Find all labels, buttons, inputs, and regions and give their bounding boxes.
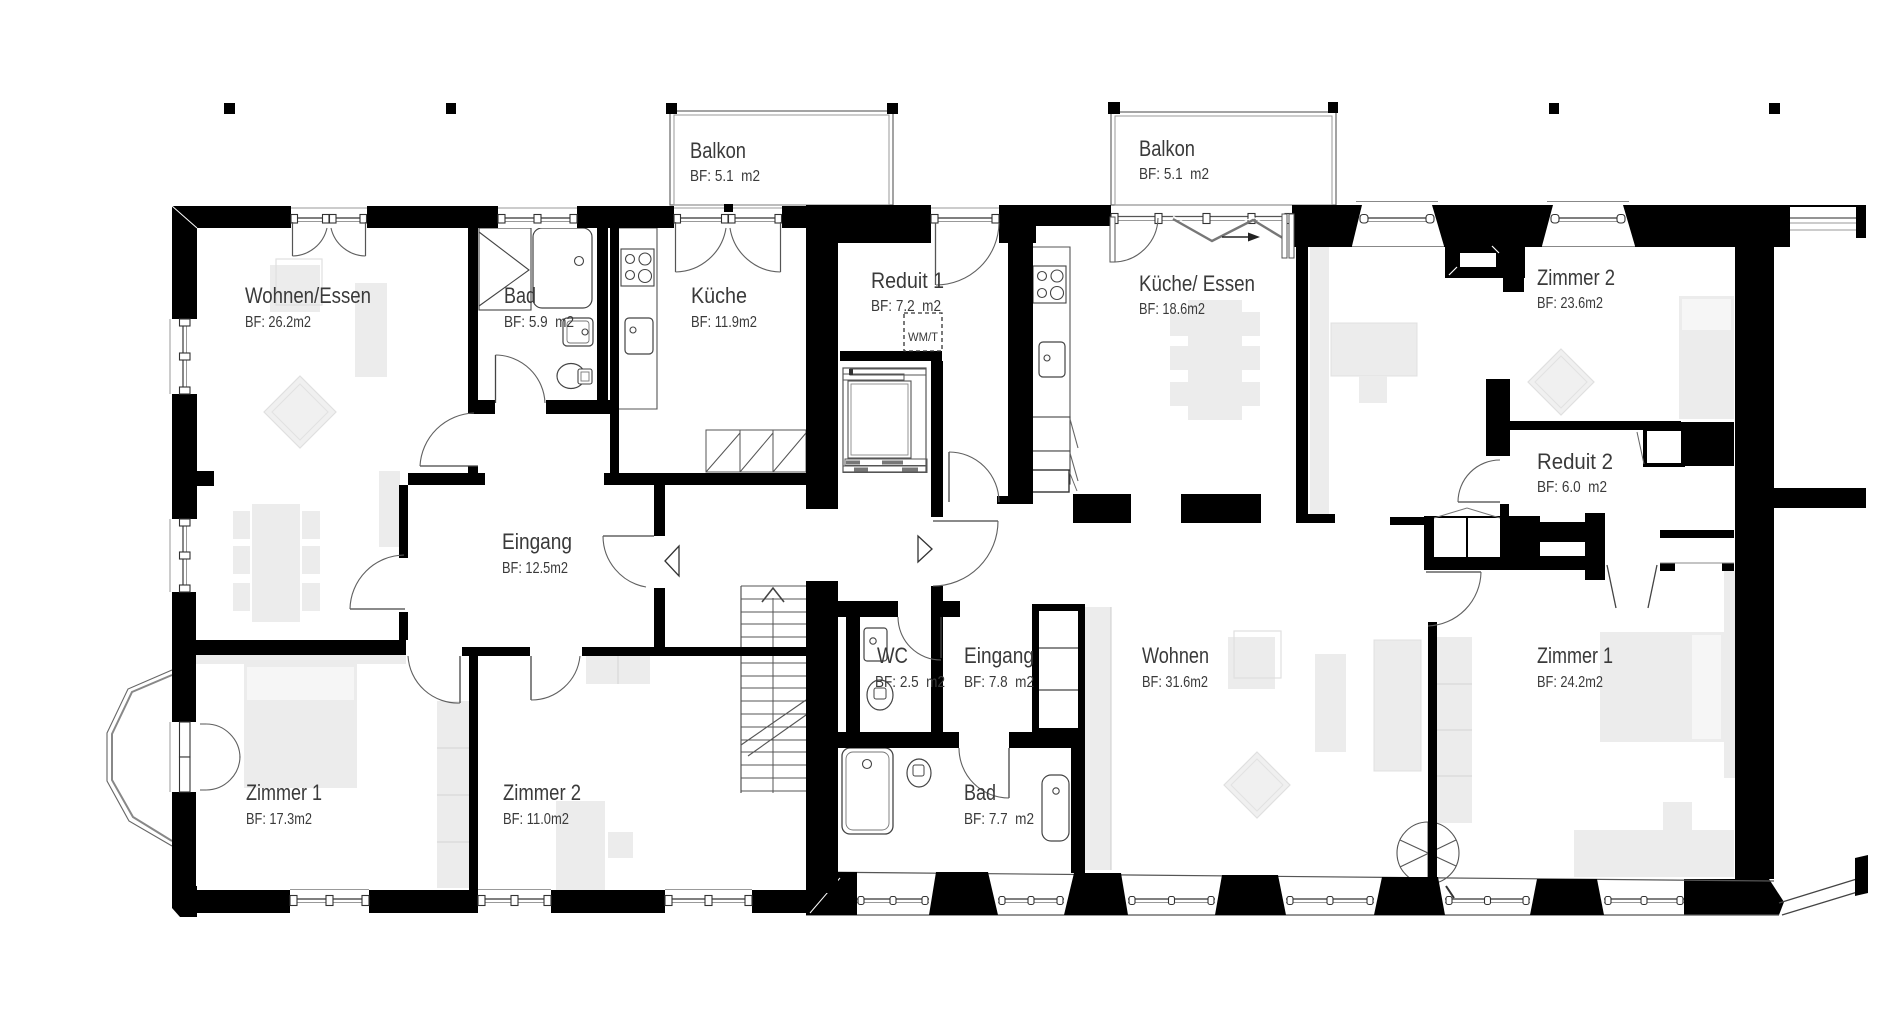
svg-text:BF: 5.9 m2: BF: 5.9 m2	[504, 314, 574, 331]
svg-text:Reduit 2: Reduit 2	[1537, 449, 1613, 474]
svg-text:BF: 26.2m2: BF: 26.2m2	[245, 314, 311, 331]
svg-text:Zimmer 2: Zimmer 2	[1537, 265, 1615, 290]
svg-text:BF: 6.0 m2: BF: 6.0 m2	[1537, 479, 1607, 496]
svg-text:BF: 31.6m2: BF: 31.6m2	[1142, 674, 1208, 691]
svg-text:Bad: Bad	[964, 780, 996, 805]
svg-text:BF: 5.1 m2: BF: 5.1 m2	[1139, 166, 1209, 183]
svg-text:Küche/ Essen: Küche/ Essen	[1139, 271, 1255, 296]
svg-text:BF: 18.6m2: BF: 18.6m2	[1139, 301, 1205, 318]
svg-text:Zimmer 1: Zimmer 1	[246, 780, 322, 805]
svg-text:BF: 12.5m2: BF: 12.5m2	[502, 560, 568, 577]
svg-text:BF: 17.3m2: BF: 17.3m2	[246, 811, 312, 828]
svg-text:BF: 5.1 m2: BF: 5.1 m2	[690, 168, 760, 185]
svg-text:Bad: Bad	[504, 283, 536, 308]
svg-text:BF: 7.2 m2: BF: 7.2 m2	[871, 298, 941, 315]
svg-text:BF: 24.2m2: BF: 24.2m2	[1537, 674, 1603, 691]
svg-text:Küche: Küche	[691, 283, 747, 308]
svg-text:Reduit 1: Reduit 1	[871, 268, 944, 293]
svg-text:Eingang: Eingang	[964, 643, 1034, 668]
svg-text:BF: 7.8 m2: BF: 7.8 m2	[964, 674, 1034, 691]
svg-text:Wohnen: Wohnen	[1142, 643, 1209, 668]
svg-text:WC: WC	[877, 643, 908, 668]
svg-text:Zimmer 2: Zimmer 2	[503, 780, 581, 805]
svg-text:BF: 11.0m2: BF: 11.0m2	[503, 811, 569, 828]
svg-text:WM/T: WM/T	[908, 330, 939, 344]
svg-text:Wohnen/Essen: Wohnen/Essen	[245, 283, 371, 308]
svg-text:Eingang: Eingang	[502, 529, 572, 554]
svg-text:Zimmer 1: Zimmer 1	[1537, 643, 1613, 668]
svg-text:BF: 23.6m2: BF: 23.6m2	[1537, 295, 1603, 312]
svg-text:BF: 11.9m2: BF: 11.9m2	[691, 314, 757, 331]
svg-text:Balkon: Balkon	[690, 138, 746, 163]
svg-text:Balkon: Balkon	[1139, 136, 1195, 161]
svg-text:BF: 2.5 m2: BF: 2.5 m2	[875, 674, 945, 691]
svg-text:BF: 7.7 m2: BF: 7.7 m2	[964, 811, 1034, 828]
